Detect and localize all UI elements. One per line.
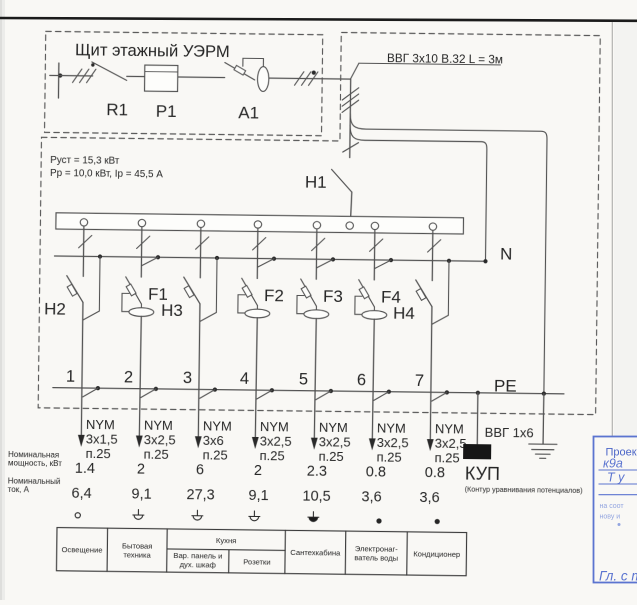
svg-text:3х2,5: 3х2,5	[144, 432, 176, 447]
svg-text:п.25: п.25	[86, 446, 111, 461]
svg-text:3: 3	[183, 369, 192, 387]
svg-text:техника: техника	[123, 550, 151, 559]
svg-text:п.25: п.25	[260, 448, 285, 463]
svg-text:1.4: 1.4	[75, 461, 95, 477]
svg-text:нову и: нову и	[600, 514, 621, 521]
svg-text:п.25: п.25	[319, 449, 344, 464]
svg-text:10,5: 10,5	[302, 489, 330, 505]
svg-text:0.8: 0.8	[425, 465, 445, 481]
svg-text:3х2,5: 3х2,5	[435, 436, 467, 451]
svg-text:ток, А: ток, А	[8, 485, 30, 494]
svg-text:NYM: NYM	[144, 418, 173, 433]
svg-text:3х2,5: 3х2,5	[260, 434, 292, 449]
svg-text:3,6: 3,6	[361, 489, 381, 505]
svg-text:H2: H2	[44, 299, 66, 318]
svg-text:6: 6	[357, 371, 366, 389]
svg-text:H4: H4	[393, 304, 415, 323]
svg-text:H1: H1	[305, 173, 327, 192]
svg-text:Кондиционер: Кондиционер	[413, 549, 460, 559]
svg-text:мощность, кВт: мощность, кВт	[8, 459, 62, 469]
svg-text:6: 6	[196, 462, 204, 478]
svg-text:Щит этажный УЭРМ: Щит этажный УЭРМ	[75, 40, 230, 61]
svg-text:NYM: NYM	[260, 419, 289, 434]
svg-text:2: 2	[254, 463, 262, 479]
svg-text:п.25: п.25	[434, 450, 459, 465]
svg-text:NYM: NYM	[377, 420, 406, 435]
svg-text:F3: F3	[323, 287, 343, 306]
svg-text:27,3: 27,3	[186, 487, 214, 503]
svg-text:4: 4	[240, 370, 249, 388]
svg-text:2.3: 2.3	[307, 464, 327, 480]
svg-text:Сантехкабина: Сантехкабина	[290, 548, 341, 558]
svg-text:3х6: 3х6	[203, 433, 224, 448]
svg-text:(Контур уравнивания потенциало: (Контур уравнивания потенциалов)	[465, 485, 583, 495]
svg-text:NYM: NYM	[435, 421, 464, 436]
svg-text:9,1: 9,1	[248, 488, 268, 504]
svg-text:на соот: на соот	[600, 503, 625, 510]
svg-text:Освещение: Освещение	[62, 545, 103, 554]
svg-text:6,4: 6,4	[71, 486, 91, 502]
svg-text:N: N	[500, 244, 513, 263]
svg-text:Бытовая: Бытовая	[122, 541, 152, 550]
svg-text:9,1: 9,1	[131, 486, 151, 502]
svg-text:F2: F2	[264, 286, 284, 305]
svg-text:3х2,5: 3х2,5	[319, 434, 351, 449]
svg-text:R1: R1	[106, 100, 128, 119]
svg-text:3х2,5: 3х2,5	[377, 435, 409, 450]
svg-text:2: 2	[124, 368, 133, 386]
svg-text:Кухня: Кухня	[216, 536, 236, 545]
svg-text:NYM: NYM	[86, 417, 115, 432]
svg-text:Гл. с т: Гл. с т	[599, 569, 637, 584]
svg-text:Рр = 10,0 кВт, Iр = 45,5 А: Рр = 10,0 кВт, Iр = 45,5 А	[50, 168, 163, 180]
svg-text:КУП: КУП	[465, 464, 500, 484]
svg-text:A1: A1	[238, 103, 259, 122]
svg-text:Руст = 15,3 кВт: Руст = 15,3 кВт	[50, 155, 120, 167]
svg-text:2: 2	[137, 462, 145, 478]
svg-text:дух. шкаф: дух. шкаф	[180, 560, 216, 569]
svg-text:NYM: NYM	[203, 418, 232, 433]
svg-text:3,6: 3,6	[419, 490, 439, 506]
svg-text:п.25: п.25	[144, 446, 169, 461]
svg-text:P1: P1	[156, 102, 177, 121]
svg-text:п.25: п.25	[203, 447, 228, 462]
svg-text:к9а: к9а	[603, 457, 623, 471]
svg-text:7: 7	[415, 372, 424, 390]
svg-text:0.8: 0.8	[366, 464, 386, 480]
svg-text:ВВГ 1х6: ВВГ 1х6	[485, 425, 534, 441]
svg-text:Т у: Т у	[607, 471, 625, 485]
svg-text:п.25: п.25	[376, 449, 401, 464]
svg-text:Розетки: Розетки	[243, 557, 270, 566]
svg-text:NYM: NYM	[319, 420, 348, 435]
svg-text:ватель воды: ватель воды	[354, 553, 398, 563]
svg-text:H3: H3	[161, 301, 183, 320]
svg-text:5: 5	[299, 370, 308, 388]
svg-text:1: 1	[66, 368, 75, 386]
svg-text:3х1,5: 3х1,5	[86, 431, 118, 446]
svg-text:PE: PE	[494, 376, 517, 395]
